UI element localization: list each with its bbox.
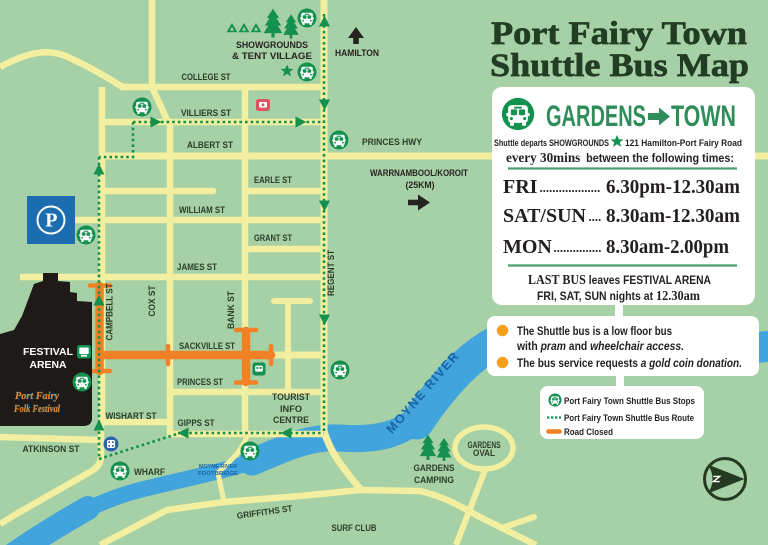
svg-text:Shuttle Bus Map: Shuttle Bus Map — [490, 48, 749, 84]
svg-text:8.30am-2.00pm: 8.30am-2.00pm — [606, 237, 729, 258]
svg-text:8.30am-12.30am: 8.30am-12.30am — [606, 206, 740, 227]
svg-text:Port Fairy Town Shuttle Bus St: Port Fairy Town Shuttle Bus Stops — [564, 396, 695, 407]
svg-text:Port Fairy Town: Port Fairy Town — [491, 16, 747, 52]
svg-text:COLLEGE ST: COLLEGE ST — [182, 72, 232, 82]
svg-text:EARLE ST: EARLE ST — [254, 175, 293, 185]
svg-text:BANK ST: BANK ST — [226, 290, 236, 329]
svg-text:MON: MON — [503, 236, 552, 258]
svg-text:COX ST: COX ST — [147, 285, 157, 317]
svg-text:Port Fairy: Port Fairy — [15, 391, 59, 402]
svg-text:PRINCES ST: PRINCES ST — [177, 377, 224, 387]
svg-text:121 Hamilton-Port Fairy Road: 121 Hamilton-Port Fairy Road — [625, 138, 742, 149]
svg-text:ATKINSON ST: ATKINSON ST — [23, 444, 81, 454]
svg-text:SHOWGROUNDS: SHOWGROUNDS — [236, 40, 308, 50]
svg-text:The Shuttle bus is a low floor: The Shuttle bus is a low floor bus — [517, 324, 672, 338]
svg-text:The bus service requests a gol: The bus service requests a gold coin don… — [517, 356, 742, 370]
svg-text:Folk Festival: Folk Festival — [13, 404, 60, 415]
svg-text:CAMPING: CAMPING — [414, 475, 454, 485]
svg-text:P: P — [45, 210, 57, 232]
svg-text:FRI, SAT, SUN nights at 12.30a: FRI, SAT, SUN nights at 12.30am — [537, 288, 701, 303]
svg-text:GRANT ST: GRANT ST — [254, 233, 293, 243]
svg-text:WARRNAMBOOL/KOROIT: WARRNAMBOOL/KOROIT — [370, 168, 469, 178]
svg-text:Shuttle departs SHOWGROUNDS: Shuttle departs SHOWGROUNDS — [494, 138, 609, 149]
svg-text:every 30mins between the follo: every 30mins between the following times… — [506, 151, 734, 166]
svg-text:FRI: FRI — [503, 176, 538, 198]
svg-text:SACKVILLE ST: SACKVILLE ST — [179, 341, 236, 351]
svg-text:MOYNE RIVER: MOYNE RIVER — [199, 464, 238, 470]
svg-text:FESTIVAL: FESTIVAL — [23, 346, 74, 358]
svg-text:FOOTBRIDGE: FOOTBRIDGE — [198, 471, 238, 477]
svg-text:JAMES ST: JAMES ST — [177, 262, 218, 272]
svg-text:ALBERT ST: ALBERT ST — [187, 140, 234, 150]
svg-text:VILLIERS ST: VILLIERS ST — [181, 108, 232, 118]
svg-text:ARENA: ARENA — [30, 359, 67, 371]
svg-text:PRINCES HWY: PRINCES HWY — [362, 137, 422, 147]
svg-text:Road Closed: Road Closed — [564, 427, 613, 438]
svg-text:GIPPS ST: GIPPS ST — [178, 418, 216, 428]
svg-text:WHARF: WHARF — [134, 467, 166, 477]
svg-text:SAT/SUN: SAT/SUN — [503, 205, 587, 227]
svg-text:& TENT VILLAGE: & TENT VILLAGE — [232, 51, 312, 61]
svg-text:with pram and wheelchair acces: with pram and wheelchair access. — [516, 339, 684, 353]
svg-text:CENTRE: CENTRE — [273, 415, 309, 425]
svg-text:TOWN: TOWN — [671, 100, 736, 133]
svg-text:GARDENS: GARDENS — [414, 463, 455, 473]
svg-text:WISHART ST: WISHART ST — [106, 411, 158, 421]
svg-text:GARDENS: GARDENS — [546, 100, 646, 133]
svg-text:(25KM): (25KM) — [406, 180, 435, 190]
svg-text:CAMPBELL ST: CAMPBELL ST — [105, 283, 115, 341]
svg-text:LAST BUS leaves FESTIVAL ARENA: LAST BUS leaves FESTIVAL ARENA — [528, 272, 711, 287]
svg-text:REGENT ST: REGENT ST — [326, 249, 336, 296]
svg-text:HAMILTON: HAMILTON — [335, 48, 379, 58]
svg-text:SURF CLUB: SURF CLUB — [332, 523, 377, 533]
svg-text:OVAL: OVAL — [473, 448, 496, 458]
svg-text:6.30pm-12.30am: 6.30pm-12.30am — [606, 177, 740, 198]
svg-text:Port Fairy Town Shuttle Bus Ro: Port Fairy Town Shuttle Bus Route — [564, 413, 694, 424]
svg-text:WILLIAM ST: WILLIAM ST — [179, 205, 226, 215]
svg-text:INFO: INFO — [280, 404, 302, 414]
svg-text:TOURIST: TOURIST — [272, 392, 311, 402]
